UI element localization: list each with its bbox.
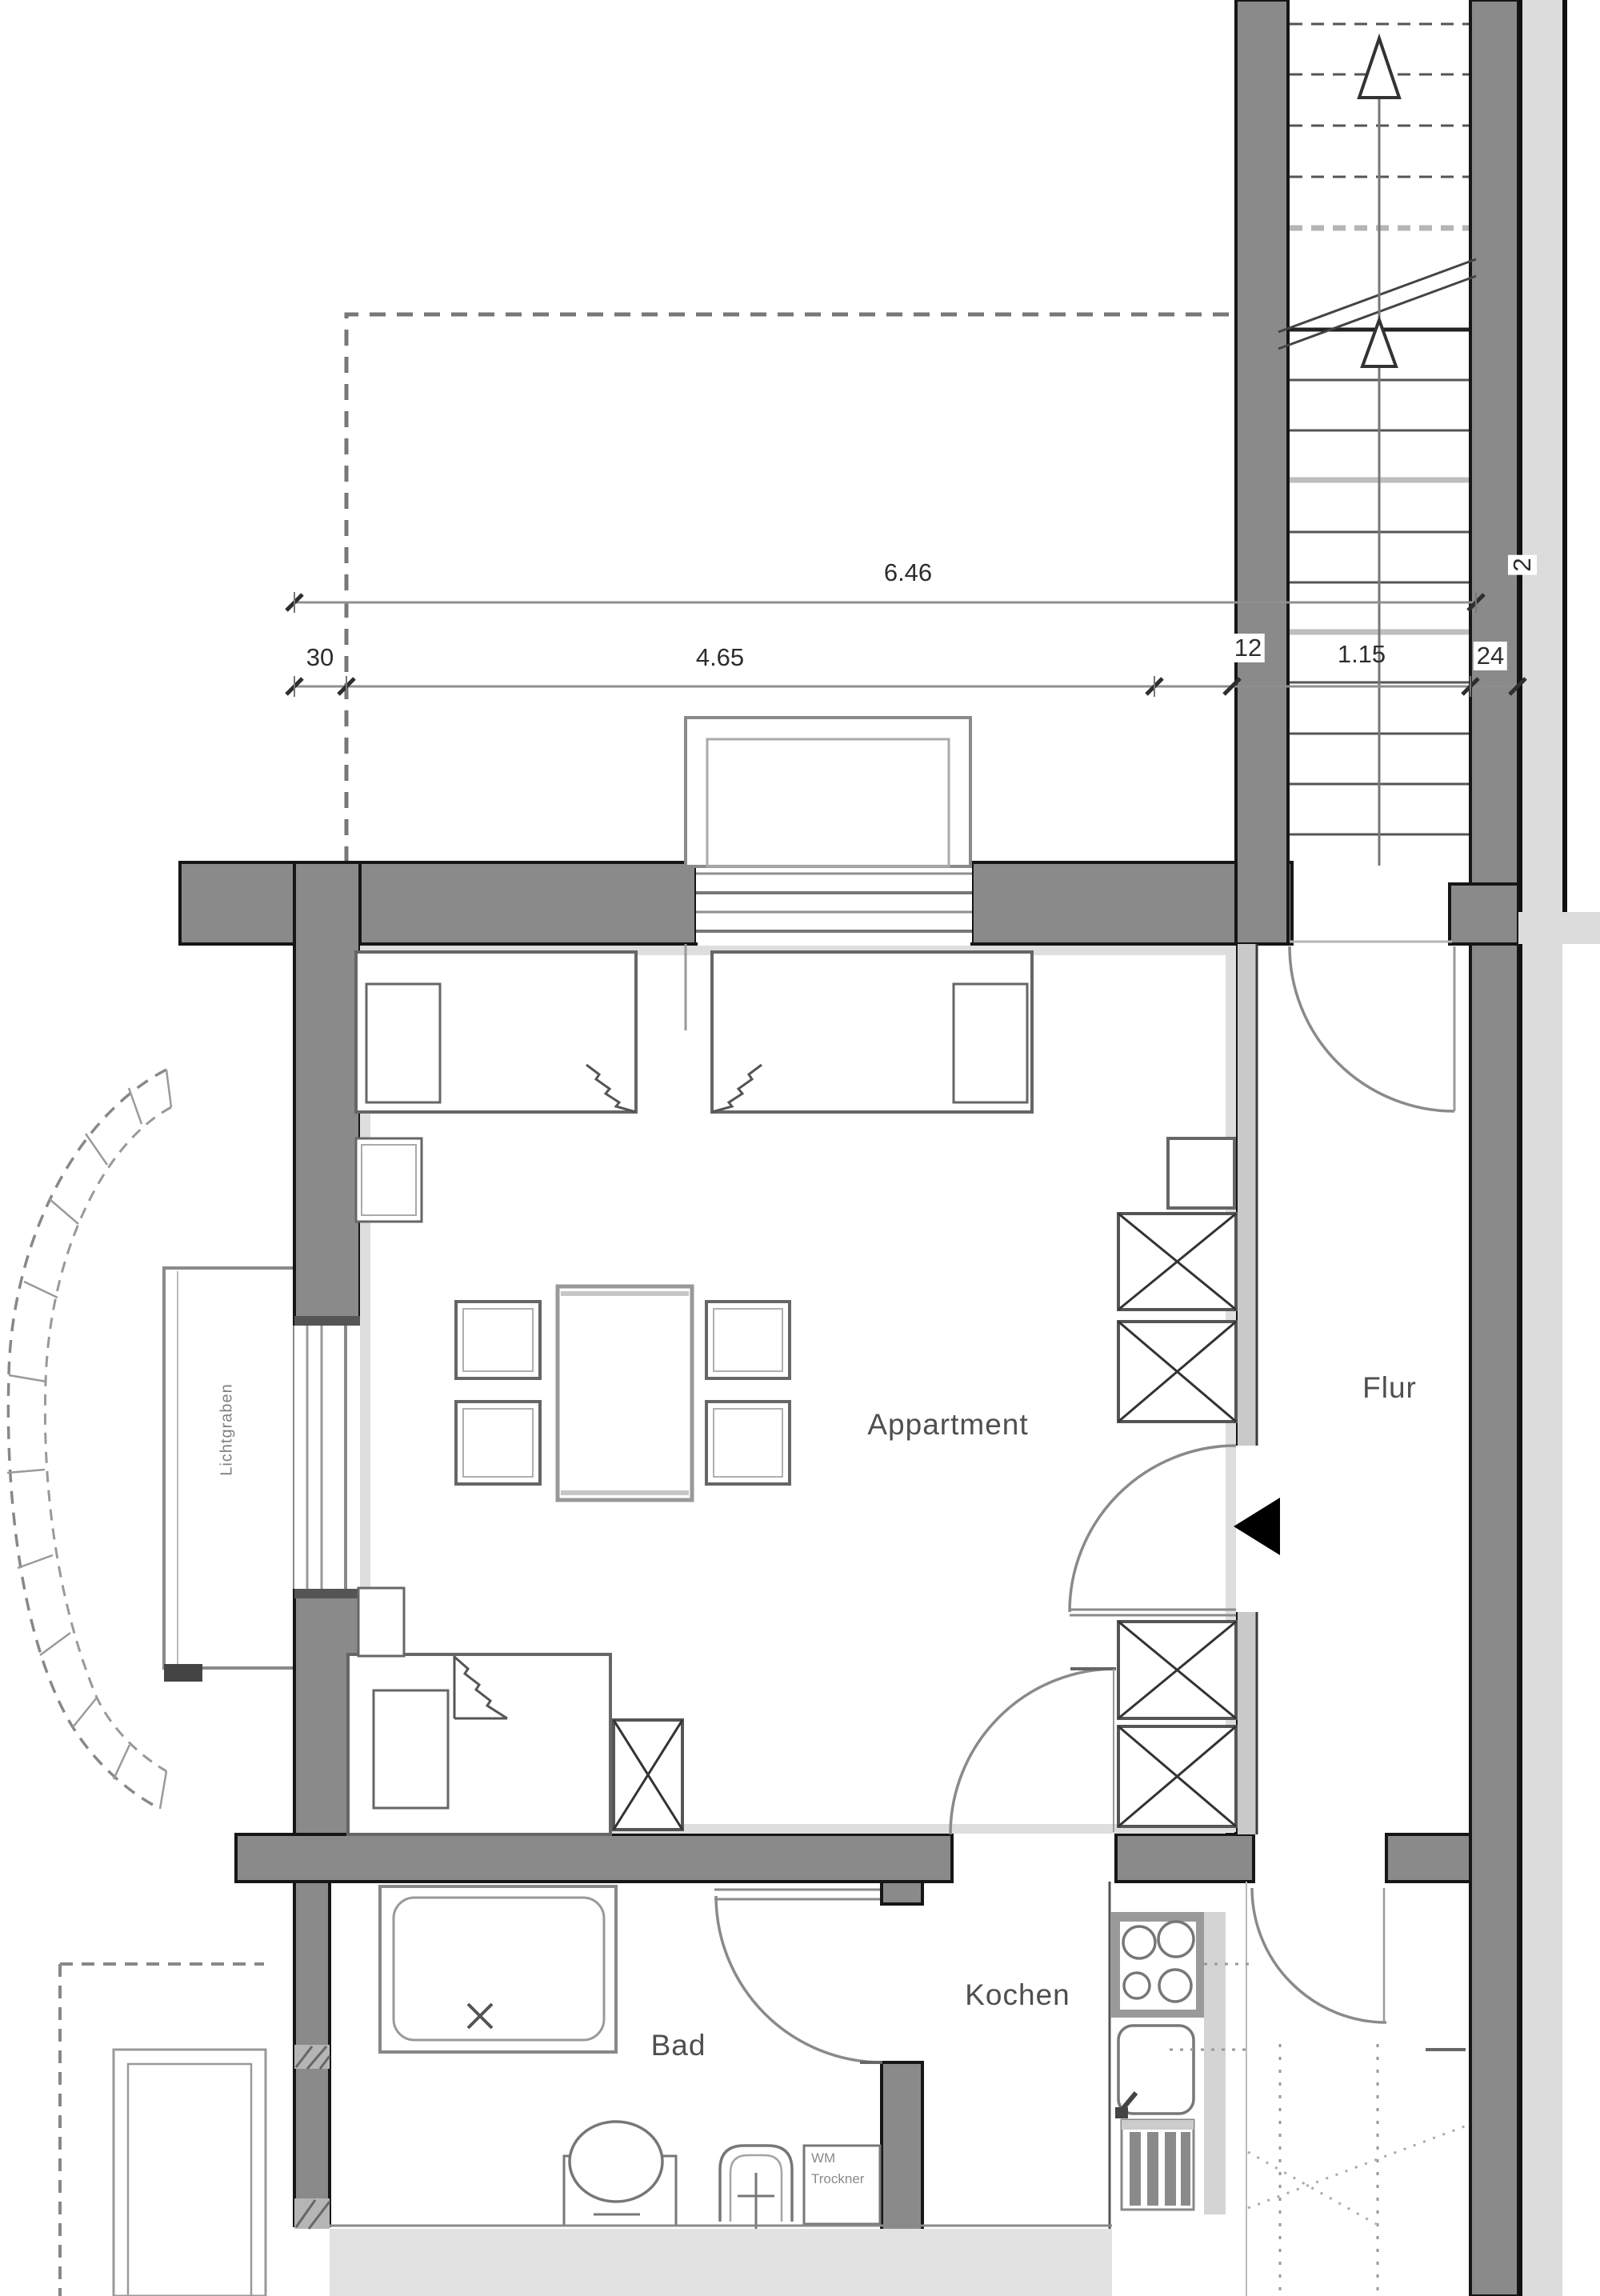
room-label-lightwell: Lichtgraben	[218, 1383, 237, 1476]
stair-tread-hatch	[7, 1070, 171, 1809]
drainboard	[1122, 2120, 1194, 2210]
right-exterior-strip	[1518, 0, 1600, 2296]
dining-set	[456, 1286, 790, 1500]
stair-mid-arrow-icon	[1362, 320, 1396, 366]
dim-partition: 12	[1231, 634, 1265, 662]
room-label-kitchen: Kochen	[965, 1978, 1070, 2012]
entrance-door-arc	[1070, 1446, 1236, 1612]
room-label-apartment: Appartment	[867, 1408, 1028, 1442]
dim-total-width: 6.46	[884, 558, 932, 587]
pillow	[374, 1690, 448, 1808]
floor-plan: Appartment Flur Bad Kochen Lichtgraben 6…	[0, 0, 1600, 2296]
kitchen-door-arc	[950, 1669, 1116, 1834]
dim-stair-width: 1.15	[1338, 640, 1386, 669]
nightstands	[356, 1138, 1234, 1656]
landing-hidden-lines	[1248, 2044, 1469, 2296]
dim-left-wall: 30	[306, 643, 334, 672]
room-label-bathroom: Bad	[651, 2029, 706, 2062]
bottom-cut	[330, 2226, 1112, 2296]
dim-room-width: 4.65	[696, 643, 744, 672]
floor-plan-drawing	[0, 0, 1600, 2296]
washer-label: WM	[811, 2150, 835, 2166]
dim-right-wall: 24	[1474, 642, 1507, 670]
table	[558, 1286, 692, 1500]
left-window	[294, 1316, 360, 1598]
kitchen-unit	[1110, 1882, 1250, 2296]
room-label-hallway: Flur	[1362, 1371, 1417, 1405]
shower	[380, 1886, 616, 2052]
landing-door-arc	[1252, 1888, 1386, 2022]
curved-exterior-stair	[7, 1070, 171, 1809]
pillow	[366, 984, 440, 1102]
pillow	[954, 984, 1027, 1102]
bathroom-fixtures	[380, 1886, 880, 2240]
top-window	[686, 718, 972, 942]
stove	[1110, 1912, 1204, 2018]
sink	[1115, 2026, 1194, 2118]
stair-up-arrow-icon	[1359, 38, 1399, 98]
dryer-label: Trockner	[811, 2171, 864, 2187]
toilet	[564, 2122, 676, 2226]
bathroom-door-arc	[716, 1896, 882, 2062]
dim-finish: 2	[1508, 554, 1537, 574]
partition-wall	[1236, 944, 1257, 1834]
entrance-arrow-icon	[1234, 1498, 1280, 1555]
exterior-terrace	[60, 1964, 266, 2296]
staircase	[1278, 24, 1476, 866]
